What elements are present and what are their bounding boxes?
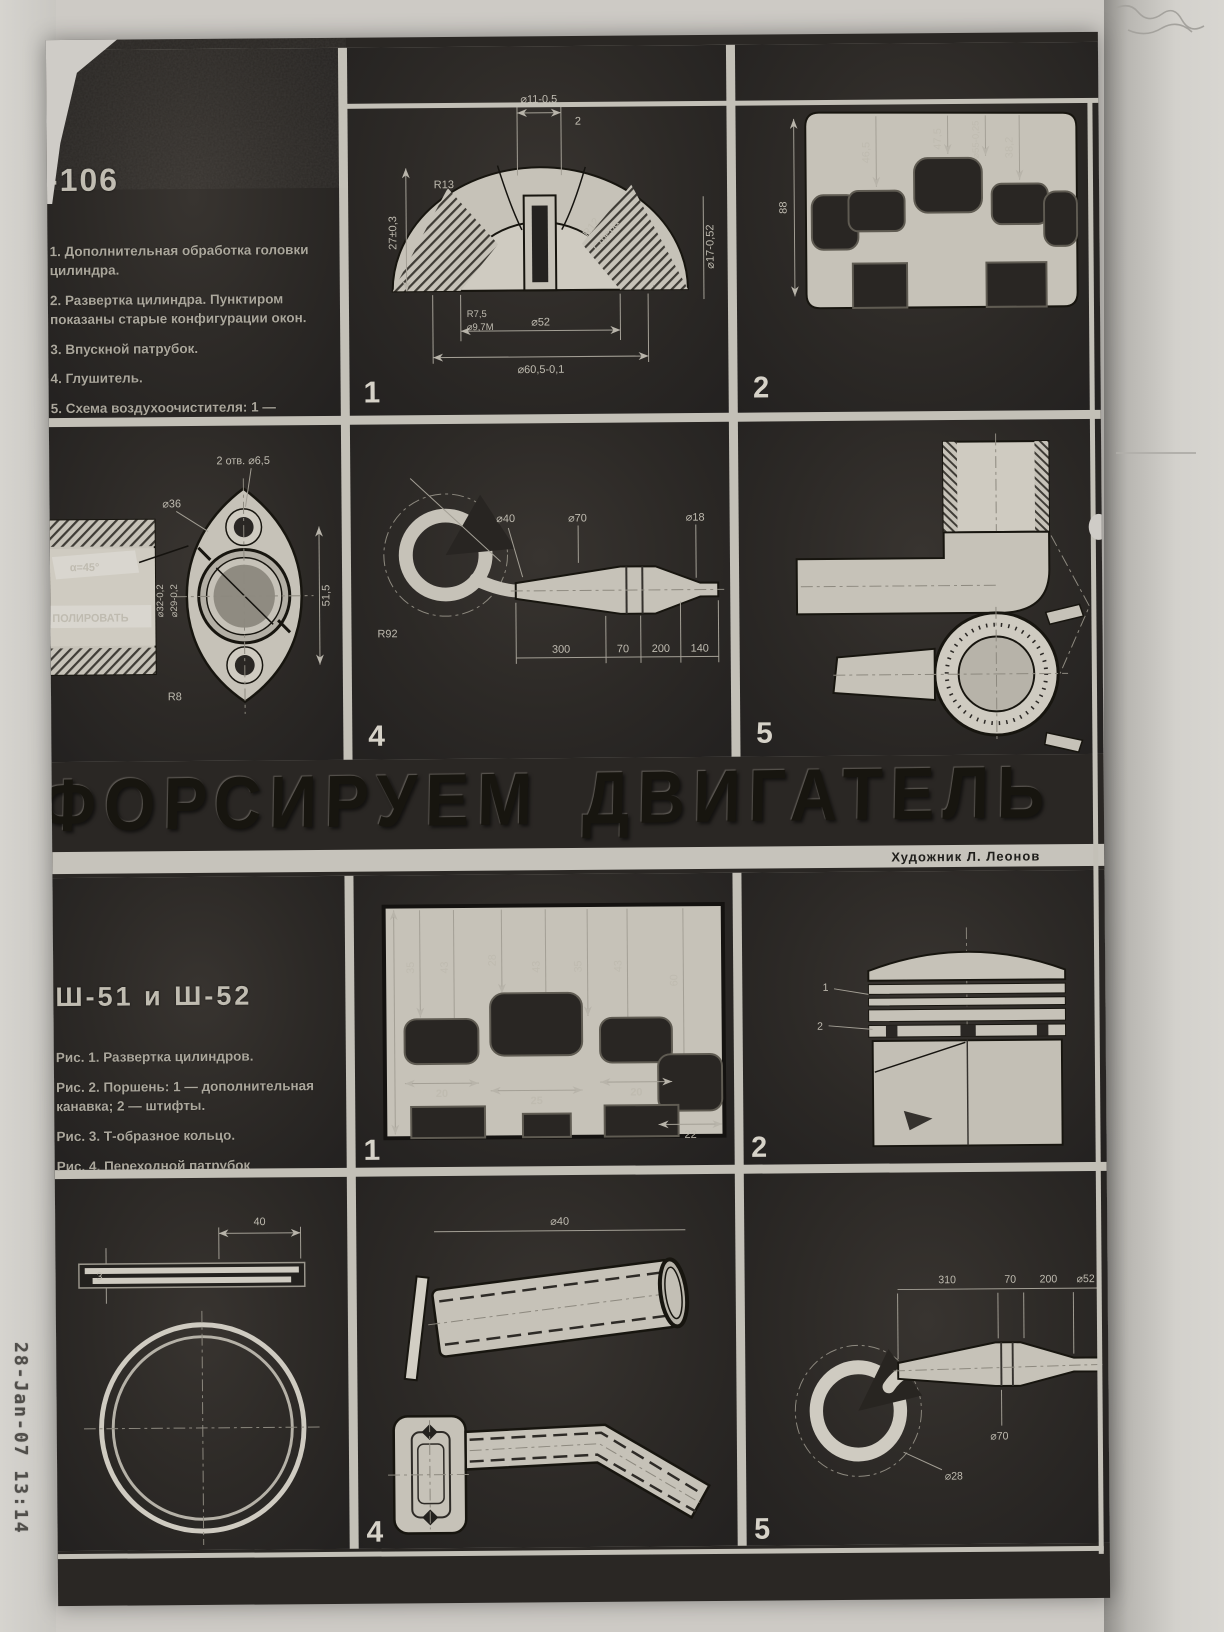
caption-line: Рис. 2. Поршень: 1 — дополнительная кана…: [56, 1077, 332, 1117]
dim-label: 200: [1040, 1273, 1058, 1285]
scanner-right-margin: [1104, 0, 1224, 1632]
handwriting-mark: [1108, 0, 1218, 70]
caption-line: 3. Впускной патрубок.: [50, 339, 326, 360]
dim-label: 40: [254, 1216, 266, 1228]
pencil-mark: [1116, 452, 1196, 454]
muffler-drawing: 310 70 200 ⌀52 ⌀70 ⌀28 5: [744, 1171, 1110, 1546]
scan-timestamp: 28-Jan-07 13:14: [10, 1342, 31, 1535]
caption-line: 5. Схема воздухоочистителя: 1 — фильтрую…: [51, 398, 327, 418]
dim-label: ⌀60,5-0,1: [518, 364, 565, 376]
dim-label: ⌀40: [496, 513, 515, 525]
dim-label: 43: [612, 960, 624, 972]
dim-label: ⌀28: [945, 1470, 963, 1482]
figure-top-4: ⌀40 ⌀70 ⌀18 300 70 200 140 R92 4: [350, 422, 732, 760]
dim-label: ⌀40: [550, 1216, 569, 1228]
dim-label: 200: [652, 643, 670, 655]
dim-label: ⌀29-0,2: [169, 584, 180, 617]
dim-label: 140: [691, 643, 709, 655]
dim-label: 20: [630, 1087, 642, 1099]
figure-number: 4: [366, 1516, 383, 1549]
dim-label: 310: [938, 1274, 956, 1286]
figure-bottom-3: 40 3: [55, 1177, 350, 1551]
adapter-pipe-drawing: ⌀40 4: [356, 1174, 738, 1549]
dim-label: R92: [377, 628, 397, 640]
dim-label: 60: [668, 974, 680, 986]
dim-label: ⌀70: [990, 1430, 1008, 1442]
page-title: ФОРСИРУЕМ ДВИГАТЕЛЬ: [46, 749, 1053, 848]
scanned-page: 28-Jan-07 13:14 -106 1. Дополнительная о…: [0, 0, 1224, 1632]
callout-label: 2: [817, 1021, 823, 1033]
dim-label: 51,5: [320, 585, 332, 607]
dim-label: ⌀9,7М: [467, 322, 494, 333]
dim-label: 46,5: [860, 142, 872, 164]
figure-bottom-5: 310 70 200 ⌀52 ⌀70 ⌀28 5: [744, 1171, 1110, 1546]
dim-label: 22: [684, 1129, 696, 1141]
dim-label: ⌀17-0,52: [704, 224, 716, 268]
figure-top-5: 5: [738, 419, 1104, 757]
dim-label: 43: [531, 961, 543, 973]
dim-label: 38,2: [1004, 137, 1016, 159]
figure-number: 5: [756, 717, 773, 750]
top-figure-grid: -106 1. Дополнительная обработка головки…: [46, 42, 1104, 762]
callout-label: 1: [823, 982, 829, 994]
dim-label: ⌀52: [1077, 1273, 1095, 1285]
dim-label: 70: [617, 643, 629, 655]
dim-label: ⌀70: [568, 513, 587, 525]
top-heading: -106: [47, 160, 339, 199]
dim-label: 43: [439, 962, 451, 974]
elbow-pipe-drawing: 5: [738, 419, 1104, 757]
piston-drawing: 1 2 2: [741, 870, 1106, 1165]
caption-line: 2. Развертка цилиндра. Пунктиром показан…: [50, 290, 326, 330]
dim-label: 20: [436, 1088, 448, 1100]
dim-label: 28: [487, 954, 499, 966]
dim-label: ⌀52: [531, 316, 550, 328]
figure-number: 1: [363, 376, 380, 409]
dim-label: 2 отв. ⌀6,5: [216, 455, 269, 468]
dim-label: 35: [572, 960, 584, 972]
flange-drawing: α=45° ПОЛИРОВАТЬ: [49, 425, 344, 762]
figure-number: 1: [363, 1134, 380, 1167]
cylinder-development-ports-drawing: 35 43 28 43 35 43 60: [353, 873, 734, 1168]
bottom-caption-block: Ш-51 и Ш-52 Рис. 1. Развертка цилиндров.…: [52, 876, 346, 1170]
dim-label: ⌀18: [686, 512, 705, 524]
dim-label: ⌀32-0,2: [155, 584, 166, 617]
figure-bottom-1: 35 43 28 43 35 43 60: [353, 873, 734, 1168]
figure-number: 5: [754, 1513, 770, 1546]
t-ring-drawing: 40 3: [55, 1177, 350, 1551]
dim-label: 35: [405, 962, 417, 974]
dim-label: 70: [1004, 1274, 1016, 1286]
caption-line: 1. Дополнительная обработка головки цили…: [49, 241, 325, 281]
dim-label: R13: [434, 179, 454, 191]
figure-bottom-2: 1 2 2: [741, 870, 1106, 1165]
dim-label: R8: [168, 691, 182, 703]
dim-label: 27±0,3: [387, 216, 399, 250]
figure-number: 4: [368, 720, 385, 753]
caption-line: Рис. 4. Переходной патрубок карбюратора.: [57, 1156, 333, 1171]
caption-line: Рис. 1. Развертка цилиндров.: [56, 1047, 332, 1068]
figure-number: 2: [751, 1132, 767, 1164]
dim-label: ⌀36: [162, 498, 181, 510]
dim-label: 300: [552, 644, 570, 656]
title-band: ФОРСИРУЕМ ДВИГАТЕЛЬ: [52, 754, 1105, 852]
top-caption-block: -106 1. Дополнительная обработка головки…: [46, 48, 341, 418]
figure-bottom-4: ⌀40 4: [356, 1174, 738, 1549]
dim-label: 47,5: [932, 128, 944, 150]
dim-label: ⌀55-0,25: [971, 121, 981, 159]
dim-label: 3: [96, 1271, 102, 1283]
caption-line: Рис. 3. Т-образное кольцо.: [56, 1126, 332, 1147]
dim-label: 2: [575, 116, 581, 128]
magazine-page: -106 1. Дополнительная обработка головки…: [46, 32, 1110, 1606]
dim-label: 88: [778, 201, 790, 213]
bottom-heading: Ш-51 и Ш-52: [55, 980, 345, 1013]
figure-top-3: α=45° ПОЛИРОВАТЬ: [49, 425, 344, 762]
expansion-pipe-drawing: ⌀40 ⌀70 ⌀18 300 70 200 140 R92 4: [350, 422, 732, 760]
angle-label: α=45°: [70, 562, 100, 574]
polish-label: ПОЛИРОВАТЬ: [52, 612, 128, 625]
bottom-figure-grid: Ш-51 и Ш-52 Рис. 1. Развертка цилиндров.…: [52, 870, 1109, 1551]
dim-label: 25: [531, 1095, 543, 1107]
figure-number: 2: [753, 371, 769, 405]
artist-credit: Художник Л. Леонов: [891, 848, 1040, 864]
caption-line: 4. Глушитель.: [50, 368, 326, 389]
dim-label: R7,5: [467, 309, 487, 320]
